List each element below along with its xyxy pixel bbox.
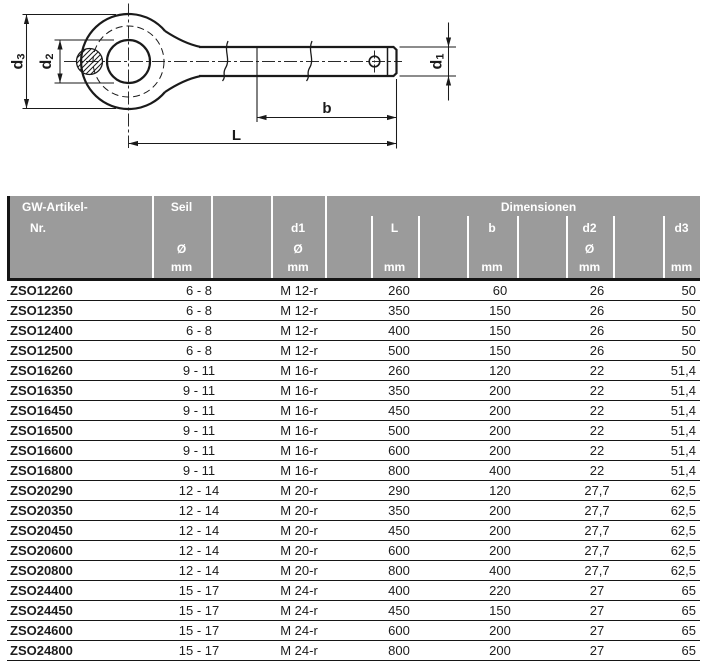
cell-seil-diameter: 15 - 17: [150, 601, 248, 620]
column-separator: [325, 196, 327, 278]
cell-d3: 51,4: [642, 401, 700, 420]
table-row: ZSO16500 9 - 11 M 16-r 500 200 22 51,4: [7, 421, 700, 441]
cell-seil-diameter: 12 - 14: [150, 521, 248, 540]
cell-artikel-nr: ZSO16260: [7, 361, 150, 380]
cell-d2: 27,7: [552, 521, 642, 540]
cell-d3: 62,5: [642, 541, 700, 560]
cell-artikel-nr: ZSO20800: [7, 561, 150, 580]
cell-b: 200: [448, 621, 552, 640]
cell-d1: M 20-r: [248, 561, 350, 580]
cell-d3: 65: [642, 621, 700, 640]
cell-seil-diameter: 9 - 11: [150, 401, 248, 420]
cell-artikel-nr: ZSO20290: [7, 481, 150, 500]
table-row: ZSO24800 15 - 17 M 24-r 800 200 27 65: [7, 641, 700, 661]
cell-L: 600: [350, 621, 448, 640]
cell-L: 600: [350, 541, 448, 560]
cell-d1: M 12-r: [248, 321, 350, 340]
table-row: ZSO20800 12 - 14 M 20-r 800 400 27,7 62,…: [7, 561, 700, 581]
cell-L: 400: [350, 581, 448, 600]
cell-seil-diameter: 15 - 17: [150, 581, 248, 600]
cell-L: 450: [350, 521, 448, 540]
cell-seil-diameter: 12 - 14: [150, 541, 248, 560]
cell-d1: M 20-r: [248, 501, 350, 520]
cell-seil-diameter: 15 - 17: [150, 641, 248, 660]
header-artikel-line2: Nr.: [30, 218, 150, 238]
cell-b: 150: [448, 321, 552, 340]
cell-d2: 27,7: [552, 541, 642, 560]
cell-artikel-nr: ZSO24800: [7, 641, 150, 660]
cell-b: 400: [448, 561, 552, 580]
table-row: ZSO20290 12 - 14 M 20-r 290 120 27,7 62,…: [7, 481, 700, 501]
cell-d1: M 16-r: [248, 421, 350, 440]
table-row: ZSO16600 9 - 11 M 16-r 600 200 22 51,4: [7, 441, 700, 461]
cell-d1: M 24-r: [248, 601, 350, 620]
table-row: ZSO24450 15 - 17 M 24-r 450 150 27 65: [7, 601, 700, 621]
table-row: ZSO24400 15 - 17 M 24-r 400 220 27 65: [7, 581, 700, 601]
cell-d3: 65: [642, 601, 700, 620]
ring-bar-cross-section-hatched: [77, 49, 103, 75]
header-artikel-line1: GW-Artikel-: [22, 197, 152, 217]
cell-d1: M 16-r: [248, 441, 350, 460]
cell-seil-diameter: 9 - 11: [150, 361, 248, 380]
cell-d1: M 24-r: [248, 621, 350, 640]
cell-d3: 65: [642, 581, 700, 600]
cell-artikel-nr: ZSO12400: [7, 321, 150, 340]
cell-d1: M 16-r: [248, 361, 350, 380]
cell-b: 220: [448, 581, 552, 600]
cell-d3: 50: [642, 281, 700, 300]
column-separator: [371, 216, 373, 278]
cell-b: 200: [448, 521, 552, 540]
cell-d2: 26: [552, 321, 642, 340]
header-d2: d2: [566, 218, 613, 238]
header-seil-diameter: Ø: [152, 239, 211, 259]
table-header: GW-Artikel- Seil Dimensionen Nr. d1 L b …: [7, 196, 700, 281]
cell-d2: 22: [552, 361, 642, 380]
cell-L: 800: [350, 641, 448, 660]
header-d1-diameter: Ø: [271, 239, 325, 259]
cell-d2: 27,7: [552, 481, 642, 500]
cell-b: 150: [448, 341, 552, 360]
cell-d1: M 16-r: [248, 401, 350, 420]
table-body: ZSO12260 6 - 8 M 12-r 260 60 26 50 ZSO12…: [7, 281, 700, 661]
cell-d1: M 12-r: [248, 341, 350, 360]
dim-label-b: b: [322, 100, 331, 117]
cell-d2: 22: [552, 461, 642, 480]
cell-L: 450: [350, 601, 448, 620]
cell-L: 400: [350, 321, 448, 340]
cell-d2: 27: [552, 601, 642, 620]
column-separator: [613, 216, 615, 278]
cell-d3: 50: [642, 301, 700, 320]
cell-artikel-nr: ZSO24450: [7, 601, 150, 620]
cell-d2: 27,7: [552, 501, 642, 520]
cell-d3: 51,4: [642, 421, 700, 440]
cell-b: 200: [448, 641, 552, 660]
header-seil-unit: mm: [152, 257, 211, 277]
cell-b: 200: [448, 401, 552, 420]
cell-artikel-nr: ZSO12260: [7, 281, 150, 300]
cell-artikel-nr: ZSO24600: [7, 621, 150, 640]
cell-d2: 22: [552, 441, 642, 460]
cell-artikel-nr: ZSO16450: [7, 401, 150, 420]
cell-d1: M 16-r: [248, 461, 350, 480]
column-separator: [152, 196, 154, 278]
header-seil: Seil: [152, 197, 211, 217]
table-row: ZSO16350 9 - 11 M 16-r 350 200 22 51,4: [7, 381, 700, 401]
header-L: L: [371, 218, 418, 238]
cell-d1: M 12-r: [248, 301, 350, 320]
cell-artikel-nr: ZSO20600: [7, 541, 150, 560]
header-d2-unit: mm: [566, 257, 613, 277]
catalog-page: d3 d2 d1 b L GW-Artikel- Seil Dimensione…: [0, 0, 708, 665]
dim-label-d3: d3: [9, 54, 28, 70]
cell-b: 150: [448, 601, 552, 620]
cell-artikel-nr: ZSO12350: [7, 301, 150, 320]
cell-b: 400: [448, 461, 552, 480]
table-row: ZSO12400 6 - 8 M 12-r 400 150 26 50: [7, 321, 700, 341]
column-separator: [211, 196, 213, 278]
cell-seil-diameter: 6 - 8: [150, 341, 248, 360]
cell-d1: M 16-r: [248, 381, 350, 400]
cell-b: 200: [448, 441, 552, 460]
shaft-outline: [165, 31, 397, 122]
cell-b: 120: [448, 481, 552, 500]
cell-seil-diameter: 12 - 14: [150, 561, 248, 580]
header-d3: d3: [663, 218, 700, 238]
cell-d2: 27: [552, 581, 642, 600]
cell-seil-diameter: 12 - 14: [150, 501, 248, 520]
dim-label-L: L: [232, 127, 241, 144]
cell-artikel-nr: ZSO24400: [7, 581, 150, 600]
cell-d2: 26: [552, 281, 642, 300]
header-b: b: [467, 218, 517, 238]
cell-L: 500: [350, 341, 448, 360]
cell-d2: 27,7: [552, 561, 642, 580]
cell-artikel-nr: ZSO16800: [7, 461, 150, 480]
cell-d3: 51,4: [642, 361, 700, 380]
cell-d2: 27: [552, 641, 642, 660]
header-L-unit: mm: [371, 257, 418, 277]
header-d2-diameter: Ø: [566, 239, 613, 259]
table-row: ZSO16450 9 - 11 M 16-r 450 200 22 51,4: [7, 401, 700, 421]
cell-L: 260: [350, 361, 448, 380]
cell-d1: M 24-r: [248, 641, 350, 660]
cell-seil-diameter: 9 - 11: [150, 441, 248, 460]
cell-d1: M 20-r: [248, 521, 350, 540]
cell-b: 200: [448, 381, 552, 400]
cell-seil-diameter: 6 - 8: [150, 281, 248, 300]
header-dimensionen: Dimensionen: [325, 197, 700, 217]
cell-d3: 62,5: [642, 501, 700, 520]
cell-d2: 22: [552, 421, 642, 440]
cell-d2: 27: [552, 621, 642, 640]
header-d1-unit: mm: [271, 257, 325, 277]
cell-b: 200: [448, 541, 552, 560]
cell-d1: M 20-r: [248, 541, 350, 560]
table-row: ZSO16260 9 - 11 M 16-r 260 120 22 51,4: [7, 361, 700, 381]
cell-L: 600: [350, 441, 448, 460]
cell-seil-diameter: 9 - 11: [150, 461, 248, 480]
cell-d3: 62,5: [642, 521, 700, 540]
cell-seil-diameter: 9 - 11: [150, 421, 248, 440]
cell-seil-diameter: 6 - 8: [150, 301, 248, 320]
cell-d2: 26: [552, 341, 642, 360]
table-row: ZSO12260 6 - 8 M 12-r 260 60 26 50: [7, 281, 700, 301]
dim-label-d2: d2: [38, 54, 57, 70]
cell-artikel-nr: ZSO20350: [7, 501, 150, 520]
column-separator: [467, 216, 469, 278]
eye-bolt-technical-drawing: d3 d2 d1 b L: [0, 0, 708, 190]
cell-d3: 62,5: [642, 481, 700, 500]
dim-label-d1: d1: [428, 54, 447, 70]
cell-L: 260: [350, 281, 448, 300]
cell-d1: M 20-r: [248, 481, 350, 500]
column-separator: [418, 216, 420, 278]
table-row: ZSO20350 12 - 14 M 20-r 350 200 27,7 62,…: [7, 501, 700, 521]
cell-artikel-nr: ZSO16500: [7, 421, 150, 440]
cell-artikel-nr: ZSO16600: [7, 441, 150, 460]
cell-L: 290: [350, 481, 448, 500]
cell-L: 350: [350, 501, 448, 520]
cell-b: 150: [448, 301, 552, 320]
cell-d3: 65: [642, 641, 700, 660]
cell-seil-diameter: 9 - 11: [150, 381, 248, 400]
cell-L: 350: [350, 381, 448, 400]
table-row: ZSO12500 6 - 8 M 12-r 500 150 26 50: [7, 341, 700, 361]
cell-L: 450: [350, 401, 448, 420]
cell-artikel-nr: ZSO16350: [7, 381, 150, 400]
header-b-unit: mm: [467, 257, 517, 277]
header-d3-unit: mm: [663, 257, 700, 277]
table-row: ZSO16800 9 - 11 M 16-r 800 400 22 51,4: [7, 461, 700, 481]
cell-d1: M 12-r: [248, 281, 350, 300]
cell-seil-diameter: 15 - 17: [150, 621, 248, 640]
cell-seil-diameter: 12 - 14: [150, 481, 248, 500]
cell-L: 350: [350, 301, 448, 320]
column-separator: [566, 216, 568, 278]
cell-L: 500: [350, 421, 448, 440]
table-row: ZSO20450 12 - 14 M 20-r 450 200 27,7 62,…: [7, 521, 700, 541]
column-separator: [271, 196, 273, 278]
cell-d3: 50: [642, 341, 700, 360]
cell-L: 800: [350, 461, 448, 480]
cell-seil-diameter: 6 - 8: [150, 321, 248, 340]
cell-b: 200: [448, 501, 552, 520]
cell-d3: 51,4: [642, 441, 700, 460]
cell-d2: 22: [552, 401, 642, 420]
column-separator: [517, 216, 519, 278]
cell-d3: 62,5: [642, 561, 700, 580]
cell-L: 800: [350, 561, 448, 580]
cell-d1: M 24-r: [248, 581, 350, 600]
cell-b: 60: [448, 281, 552, 300]
cell-artikel-nr: ZSO20450: [7, 521, 150, 540]
cell-b: 200: [448, 421, 552, 440]
column-separator: [663, 216, 665, 278]
table-row: ZSO20600 12 - 14 M 20-r 600 200 27,7 62,…: [7, 541, 700, 561]
cell-b: 120: [448, 361, 552, 380]
cell-artikel-nr: ZSO12500: [7, 341, 150, 360]
cell-d3: 50: [642, 321, 700, 340]
table-row: ZSO24600 15 - 17 M 24-r 600 200 27 65: [7, 621, 700, 641]
cell-d3: 51,4: [642, 381, 700, 400]
table-row: ZSO12350 6 - 8 M 12-r 350 150 26 50: [7, 301, 700, 321]
cell-d2: 26: [552, 301, 642, 320]
cell-d2: 22: [552, 381, 642, 400]
header-d1: d1: [271, 218, 325, 238]
cell-d3: 51,4: [642, 461, 700, 480]
